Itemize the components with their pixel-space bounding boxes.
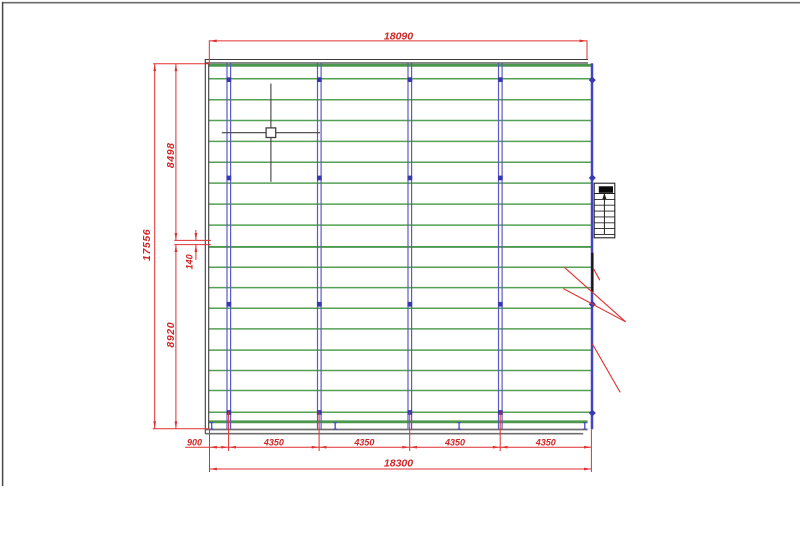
svg-text:4350: 4350 <box>353 438 374 448</box>
svg-text:8920: 8920 <box>165 322 177 348</box>
svg-text:17556: 17556 <box>141 229 153 261</box>
svg-text:4350: 4350 <box>535 438 556 448</box>
svg-text:4350: 4350 <box>444 438 465 448</box>
svg-text:4350: 4350 <box>263 438 284 448</box>
svg-text:8498: 8498 <box>165 142 177 168</box>
svg-text:900: 900 <box>187 438 202 448</box>
svg-text:18090: 18090 <box>384 30 413 42</box>
svg-text:140: 140 <box>184 254 194 269</box>
svg-text:18300: 18300 <box>384 458 413 470</box>
